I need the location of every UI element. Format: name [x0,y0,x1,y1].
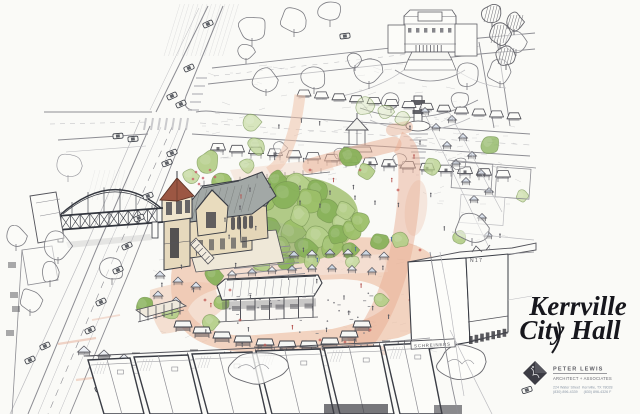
svg-text:224 Water Street Kerrville, T: 224 Water Street Kerrville, TX 78028 [553,386,613,390]
svg-text:PETER LEWIS: PETER LEWIS [553,367,604,373]
svg-text:City Hall: City Hall [519,315,621,345]
svg-text:ARCHITECT + ASSOCIATES: ARCHITECT + ASSOCIATES [553,376,612,381]
svg-text:(830) 896-4339 (830) 896-: (830) 896-4339 (830) 896-4326 F [553,390,612,394]
svg-text:N 1 7: N 1 7 [470,258,482,264]
